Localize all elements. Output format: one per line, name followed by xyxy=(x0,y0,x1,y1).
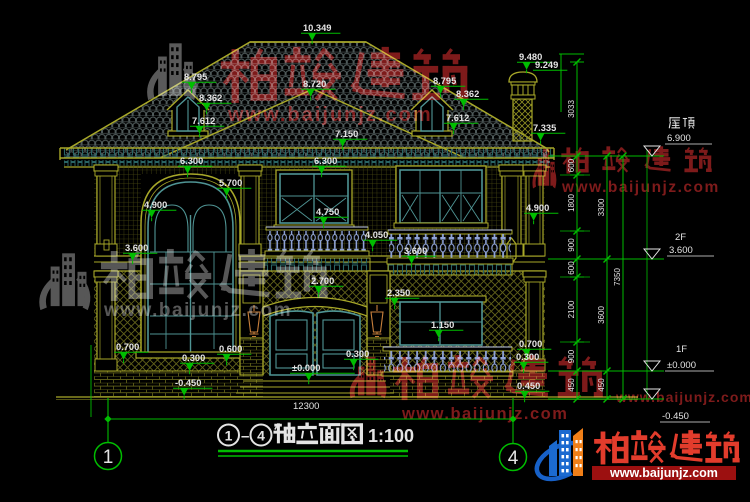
svg-text:–: – xyxy=(241,428,249,445)
svg-text:0.450: 0.450 xyxy=(517,381,540,391)
svg-text:9.249: 9.249 xyxy=(535,60,558,70)
svg-text:±0.000: ±0.000 xyxy=(667,360,696,371)
svg-text:3.600: 3.600 xyxy=(404,246,427,256)
svg-text:7350: 7350 xyxy=(613,268,622,286)
svg-text:1800: 1800 xyxy=(567,194,576,212)
svg-text:1.150: 1.150 xyxy=(431,320,454,330)
svg-text:600: 600 xyxy=(567,261,576,275)
svg-text:7.335: 7.335 xyxy=(533,123,556,133)
svg-text:7.150: 7.150 xyxy=(335,129,358,139)
svg-text:6.300: 6.300 xyxy=(314,156,337,166)
svg-text:8.795: 8.795 xyxy=(184,72,207,82)
svg-text:4: 4 xyxy=(257,428,265,444)
svg-text:5.700: 5.700 xyxy=(219,178,242,188)
svg-text:0.300: 0.300 xyxy=(346,349,369,359)
svg-text:0.600: 0.600 xyxy=(219,344,242,354)
svg-text:8.362: 8.362 xyxy=(456,89,479,99)
svg-text:-0.450: -0.450 xyxy=(175,378,201,388)
svg-text:www.baijunjz.com: www.baijunjz.com xyxy=(227,104,433,126)
svg-text:0.700: 0.700 xyxy=(116,342,139,352)
svg-text:2F: 2F xyxy=(675,232,686,243)
svg-text:0.700: 0.700 xyxy=(519,339,542,349)
svg-text:1: 1 xyxy=(225,428,233,444)
svg-text:3600: 3600 xyxy=(597,306,606,324)
svg-text:±0.000: ±0.000 xyxy=(292,363,320,373)
svg-text:6.300: 6.300 xyxy=(180,156,203,166)
svg-text:-0.450: -0.450 xyxy=(662,411,689,422)
svg-text:8.362: 8.362 xyxy=(199,93,222,103)
svg-text:www.baijunjz.com: www.baijunjz.com xyxy=(401,405,568,423)
svg-text:900: 900 xyxy=(567,349,576,363)
svg-text:1:100: 1:100 xyxy=(368,426,414,446)
svg-text:www.baijunjz.com: www.baijunjz.com xyxy=(615,389,750,405)
svg-text:3.600: 3.600 xyxy=(125,243,148,253)
svg-text:1: 1 xyxy=(103,447,114,468)
svg-text:600: 600 xyxy=(567,158,576,172)
svg-text:6.900: 6.900 xyxy=(667,133,691,144)
svg-text:8.795: 8.795 xyxy=(433,76,456,86)
svg-text:www.baijunjz.com: www.baijunjz.com xyxy=(103,300,292,321)
svg-text:3033: 3033 xyxy=(567,100,576,118)
svg-text:12300: 12300 xyxy=(293,401,319,412)
svg-text:3.600: 3.600 xyxy=(669,245,693,256)
svg-text:www.baijunjz.com: www.baijunjz.com xyxy=(609,466,718,480)
svg-text:900: 900 xyxy=(567,238,576,252)
svg-text:450: 450 xyxy=(567,378,576,392)
svg-text:4: 4 xyxy=(508,448,519,469)
svg-text:1F: 1F xyxy=(676,344,687,355)
svg-text:4.900: 4.900 xyxy=(526,203,549,213)
svg-text:www.baijunjz.com: www.baijunjz.com xyxy=(561,179,720,196)
svg-text:7.612: 7.612 xyxy=(446,113,469,123)
svg-text:0.300: 0.300 xyxy=(182,353,205,363)
svg-text:2.700: 2.700 xyxy=(311,276,334,286)
svg-text:0.300: 0.300 xyxy=(516,352,539,362)
svg-text:4.050: 4.050 xyxy=(365,230,388,240)
svg-text:2.350: 2.350 xyxy=(387,288,410,298)
svg-text:2100: 2100 xyxy=(567,300,576,318)
svg-text:4.900: 4.900 xyxy=(144,200,167,210)
svg-text:8.720: 8.720 xyxy=(303,79,326,89)
svg-text:7.612: 7.612 xyxy=(192,116,215,126)
svg-text:3300: 3300 xyxy=(597,198,606,216)
svg-text:4.750: 4.750 xyxy=(316,207,339,217)
svg-text:450: 450 xyxy=(597,378,606,392)
svg-text:10.349: 10.349 xyxy=(303,23,331,33)
